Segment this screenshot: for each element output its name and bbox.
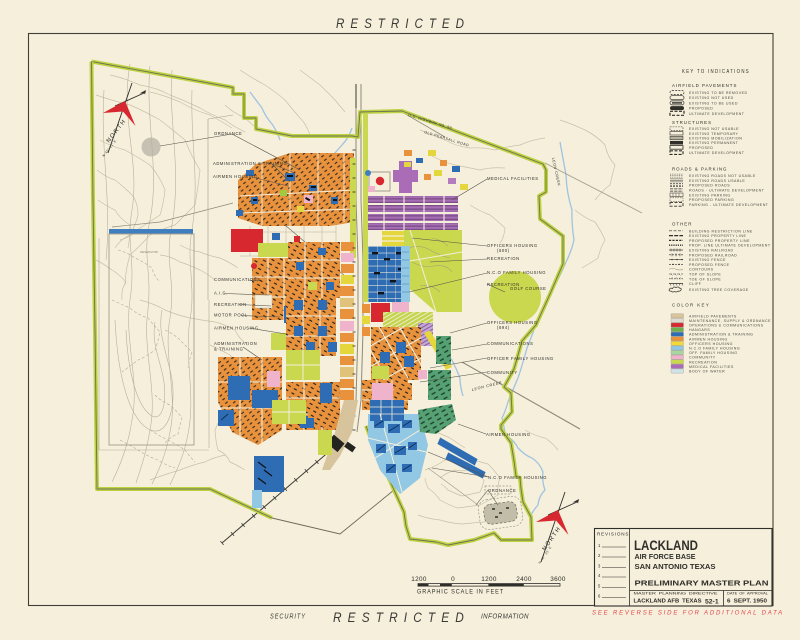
svg-text:BODY OF WATER: BODY OF WATER bbox=[689, 370, 725, 374]
svg-text:N.C.O FAMILY HOUSING: N.C.O FAMILY HOUSING bbox=[488, 475, 547, 480]
svg-text:INFORMATION: INFORMATION bbox=[481, 612, 529, 621]
svg-text:RESERVOIR: RESERVOIR bbox=[140, 250, 158, 254]
svg-text:OPERATIONS & COMMUNICATIONS: OPERATIONS & COMMUNICATIONS bbox=[689, 324, 764, 328]
svg-text:EXISTING PERMANENT: EXISTING PERMANENT bbox=[689, 141, 739, 145]
svg-text:N.C.O FAMILY HOUSING: N.C.O FAMILY HOUSING bbox=[487, 270, 546, 275]
svg-text:PROPOSED: PROPOSED bbox=[689, 146, 713, 150]
svg-text:PROPOSED PARKING: PROPOSED PARKING bbox=[689, 198, 734, 202]
svg-text:EXISTING TEMPORARY: EXISTING TEMPORARY bbox=[689, 132, 739, 136]
svg-text:PROP. LINE ULTIMATE DEVELOPMEN: PROP. LINE ULTIMATE DEVELOPMENT bbox=[689, 244, 771, 248]
svg-text:3600: 3600 bbox=[550, 576, 566, 583]
svg-text:ROADS & PARKING: ROADS & PARKING bbox=[672, 167, 727, 172]
svg-text:MOTOR POOL: MOTOR POOL bbox=[214, 313, 248, 318]
svg-text:EXISTING NOT USED: EXISTING NOT USED bbox=[689, 96, 734, 100]
svg-text:EXISTING NOT USABLE: EXISTING NOT USABLE bbox=[689, 127, 739, 131]
svg-text:OFFICER FAMILY HOUSING: OFFICER FAMILY HOUSING bbox=[487, 356, 554, 361]
svg-text:OFFICERS HOUSING: OFFICERS HOUSING bbox=[487, 243, 538, 248]
svg-text:0: 0 bbox=[451, 576, 455, 583]
svg-text:OTHER: OTHER bbox=[672, 222, 692, 227]
svg-text:PROPOSED FENCE: PROPOSED FENCE bbox=[689, 263, 730, 267]
svg-text:ORDNANCE: ORDNANCE bbox=[488, 488, 516, 493]
svg-text:GOLF COURSE: GOLF COURSE bbox=[510, 286, 547, 291]
svg-text:OFFICERS HOUSING: OFFICERS HOUSING bbox=[487, 320, 538, 325]
svg-text:TOE OF SLOPE: TOE OF SLOPE bbox=[689, 277, 721, 281]
svg-text:6 SEPT. 1950: 6 SEPT. 1950 bbox=[727, 599, 767, 605]
svg-text:SECURITY: SECURITY bbox=[270, 612, 306, 621]
svg-text:MASTER PLANNING DIRECTIVE: MASTER PLANNING DIRECTIVE bbox=[634, 592, 718, 596]
svg-text:TOP OF SLOPE: TOP OF SLOPE bbox=[689, 273, 721, 277]
svg-text:EXISTING ROADS USABLE: EXISTING ROADS USABLE bbox=[689, 179, 745, 183]
svg-text:AIRFIELD PAVEMENTS: AIRFIELD PAVEMENTS bbox=[672, 83, 737, 88]
svg-text:EXISTING RAILROAD: EXISTING RAILROAD bbox=[689, 249, 734, 253]
svg-text:DATE OF APPROVAL: DATE OF APPROVAL bbox=[727, 592, 768, 596]
svg-text:RESTRICTED: RESTRICTED bbox=[336, 16, 470, 31]
svg-text:MAINTENANCE, SUPPLY & ORDNANCE: MAINTENANCE, SUPPLY & ORDNANCE bbox=[689, 319, 771, 323]
svg-text:N.C.O FAMILY HOUSING: N.C.O FAMILY HOUSING bbox=[689, 347, 740, 351]
svg-text:COLOR KEY: COLOR KEY bbox=[672, 303, 710, 308]
svg-text:REVISIONS: REVISIONS bbox=[597, 532, 629, 537]
svg-text:PROPOSED RAILROAD: PROPOSED RAILROAD bbox=[689, 253, 737, 257]
svg-text:(600): (600) bbox=[497, 248, 510, 253]
svg-text:A.I.C.: A.I.C. bbox=[214, 291, 228, 296]
svg-text:ORDNANCE: ORDNANCE bbox=[214, 131, 242, 136]
svg-text:52-1: 52-1 bbox=[705, 599, 719, 606]
svg-text:PARKING - ULTIMATE DEVELOPMENT: PARKING - ULTIMATE DEVELOPMENT bbox=[689, 203, 769, 207]
svg-text:AIRMEN HOUSING: AIRMEN HOUSING bbox=[213, 174, 258, 179]
svg-text:EXISTING FENCE: EXISTING FENCE bbox=[689, 258, 726, 262]
svg-text:& TRAINING: & TRAINING bbox=[214, 347, 243, 352]
svg-text:COMMUNICATIONS: COMMUNICATIONS bbox=[487, 341, 533, 346]
svg-text:ULTIMATE DEVELOPMENT: ULTIMATE DEVELOPMENT bbox=[689, 151, 745, 155]
svg-text:CONTOURS: CONTOURS bbox=[689, 268, 714, 272]
svg-text:AIRMEN HOUSING: AIRMEN HOUSING bbox=[214, 326, 259, 331]
svg-text:LACKLAND AFB TEXAS: LACKLAND AFB TEXAS bbox=[634, 599, 703, 605]
svg-text:STRUCTURES: STRUCTURES bbox=[672, 120, 712, 125]
svg-text:EXISTING TO BE USED: EXISTING TO BE USED bbox=[689, 101, 738, 105]
svg-text:MEDICAL FACILITIES: MEDICAL FACILITIES bbox=[487, 176, 539, 181]
svg-text:RESTRICTED: RESTRICTED bbox=[333, 610, 470, 625]
svg-text:AIRFIELD PAVEMENTS: AIRFIELD PAVEMENTS bbox=[689, 314, 737, 318]
svg-text:PROPOSED ROADS: PROPOSED ROADS bbox=[689, 184, 730, 188]
svg-text:EXISTING PROPERTY LINE: EXISTING PROPERTY LINE bbox=[689, 234, 747, 238]
svg-text:RECREATION: RECREATION bbox=[487, 256, 520, 261]
svg-text:(694): (694) bbox=[497, 325, 510, 330]
svg-text:KEY TO INDICATIONS: KEY TO INDICATIONS bbox=[682, 69, 750, 75]
svg-text:EXISTING MOBILIZATION: EXISTING MOBILIZATION bbox=[689, 137, 742, 141]
svg-text:COMMUNITY: COMMUNITY bbox=[487, 370, 518, 375]
svg-text:EXISTING TREE COVERAGE: EXISTING TREE COVERAGE bbox=[689, 288, 749, 292]
svg-text:1200: 1200 bbox=[481, 576, 497, 583]
svg-text:OFFICERS HOUSING: OFFICERS HOUSING bbox=[689, 342, 733, 346]
svg-text:MEDICAL FACILITIES: MEDICAL FACILITIES bbox=[689, 365, 734, 369]
svg-text:COMMUNICATIONS: COMMUNICATIONS bbox=[214, 277, 260, 282]
svg-text:BUILDING RESTRICTION LINE: BUILDING RESTRICTION LINE bbox=[689, 229, 753, 233]
svg-text:AIR FORCE BASE: AIR FORCE BASE bbox=[635, 554, 696, 561]
svg-text:PRELIMINARY MASTER PLAN: PRELIMINARY MASTER PLAN bbox=[635, 579, 769, 588]
svg-text:EXISTING PARKING: EXISTING PARKING bbox=[689, 193, 731, 197]
svg-text:ADMINISTRATION & TRAINING: ADMINISTRATION & TRAINING bbox=[213, 161, 287, 166]
svg-text:SEE REVERSE SIDE FOR ADDITIONA: SEE REVERSE SIDE FOR ADDITIONAL DATA bbox=[592, 611, 784, 617]
svg-text:HANGARS: HANGARS bbox=[689, 328, 710, 332]
svg-text:ULTIMATE DEVELOPMENT: ULTIMATE DEVELOPMENT bbox=[689, 112, 745, 116]
svg-text:GRAPHIC SCALE IN FEET: GRAPHIC SCALE IN FEET bbox=[417, 589, 504, 596]
svg-text:AIRMEN HOUSING: AIRMEN HOUSING bbox=[689, 337, 728, 341]
svg-text:ADMINISTRATION: ADMINISTRATION bbox=[214, 341, 257, 346]
svg-text:PROPOSED: PROPOSED bbox=[689, 107, 713, 111]
svg-text:OFF. FAMILY HOUSING: OFF. FAMILY HOUSING bbox=[689, 351, 738, 355]
svg-text:1200: 1200 bbox=[411, 576, 427, 583]
svg-text:EXISTING ROADS NOT USABLE: EXISTING ROADS NOT USABLE bbox=[689, 174, 756, 178]
svg-text:COMMUNITY: COMMUNITY bbox=[689, 356, 716, 360]
svg-text:AIRMEN HOUSING: AIRMEN HOUSING bbox=[486, 432, 531, 437]
svg-text:ADMINISTRATION & TRAINING: ADMINISTRATION & TRAINING bbox=[689, 333, 753, 337]
svg-text:ROADS - ULTIMATE DEVELOPMENT: ROADS - ULTIMATE DEVELOPMENT bbox=[689, 189, 765, 193]
svg-text:SAN ANTONIO TEXAS: SAN ANTONIO TEXAS bbox=[635, 564, 716, 571]
svg-text:EXISTING TO BE REMOVED: EXISTING TO BE REMOVED bbox=[689, 91, 748, 95]
svg-text:RECREATION: RECREATION bbox=[689, 360, 717, 364]
svg-text:PROPOSED PROPERTY LINE: PROPOSED PROPERTY LINE bbox=[689, 239, 750, 243]
svg-text:CLIFF: CLIFF bbox=[689, 282, 702, 286]
svg-text:LACKLAND: LACKLAND bbox=[634, 538, 698, 553]
svg-text:2400: 2400 bbox=[516, 576, 532, 583]
